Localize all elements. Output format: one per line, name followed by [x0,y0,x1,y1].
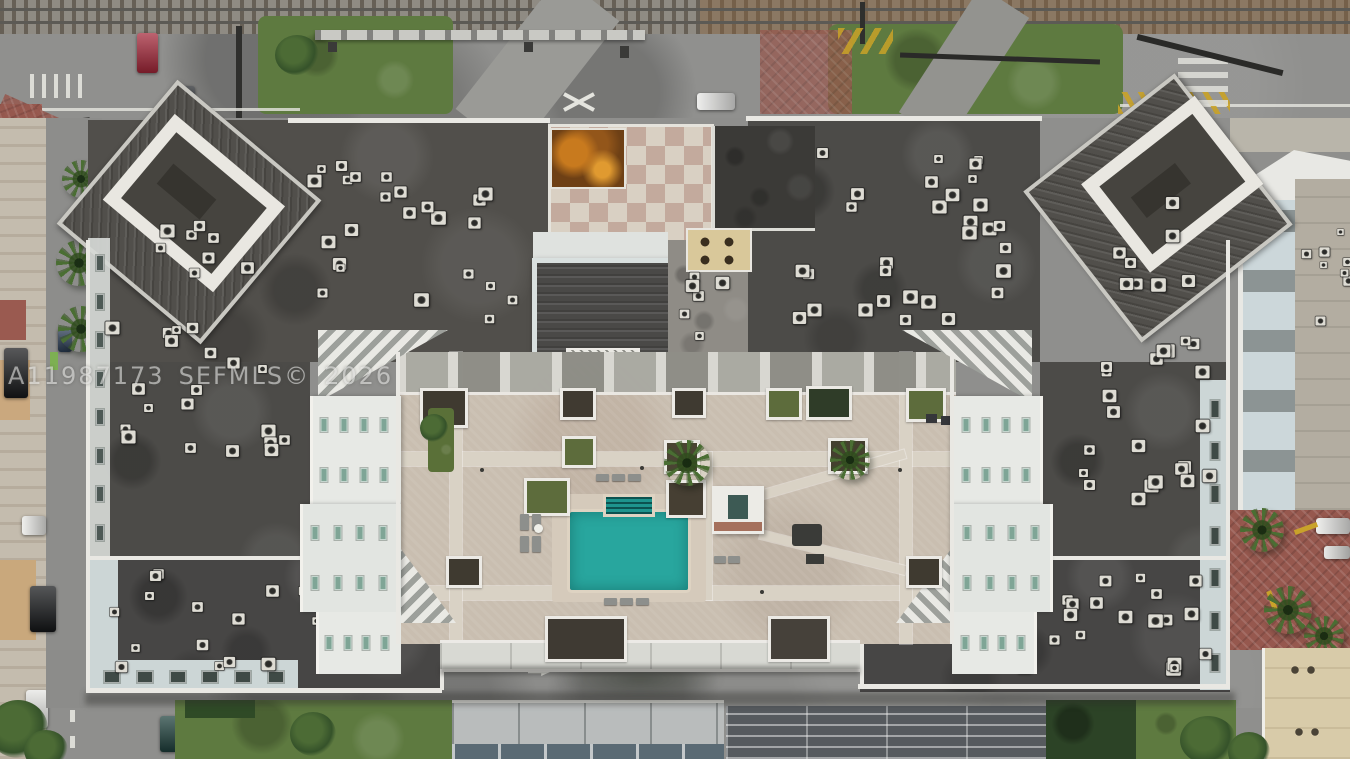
facade-right-3-windows [956,616,1030,670]
ac-unit [1315,316,1325,325]
ac-field-right-wing [1048,320,1218,520]
sidewalk-brick-patch [0,300,26,340]
ac-unit [350,172,361,182]
ac-unit [192,602,203,612]
ac-unit [1079,469,1088,477]
lounger-bottom-a [604,598,617,605]
lounger-col-c [520,536,529,552]
ac-unit [680,309,690,318]
tree-bottom-3 [24,730,68,759]
planter-dark-3 [560,388,596,420]
window [1211,527,1220,545]
window [363,636,370,650]
window [962,636,969,650]
solar-panel-roof [726,706,1046,759]
ac-unit [261,425,275,438]
ac-unit [962,226,976,239]
ac-field-center [672,262,742,342]
ac-unit [1181,336,1191,345]
ac-unit [403,207,416,218]
window [986,576,993,590]
lounger-row1-a [596,474,609,481]
south-wing-shadow [440,666,860,675]
window [1031,576,1038,590]
ac-unit [421,202,433,213]
ac-unit [904,290,919,303]
patio-chairs-dark [926,414,937,423]
ac-unit [817,148,828,158]
ac-unit [969,159,981,170]
ac-unit [261,658,275,670]
parapet-east-edge [1226,240,1230,688]
watermark-year: 2026 [324,362,393,390]
facade-right-1-windows [956,400,1036,500]
window [96,255,104,271]
window [334,526,341,540]
window [379,526,386,540]
small-tree-courtyard [420,414,448,442]
ac-unit [1185,608,1199,621]
window [1031,526,1038,540]
black-car-left [30,586,56,632]
beige-roof-ac-pair-2 [1291,724,1321,740]
lounger-col-a [520,514,529,530]
window [986,526,993,540]
rust-roof-section [550,128,626,189]
ac-unit [226,445,239,457]
ac-unit [1107,406,1120,418]
ac-unit [946,189,960,201]
ac-unit [877,295,890,307]
ac-unit [1343,258,1350,266]
trash-can-3 [760,590,764,594]
gate-equipment-2 [524,42,533,52]
window [379,576,386,590]
south-wing-planter-1 [545,616,627,662]
trash-can-2 [640,466,644,470]
planter-dark-6 [906,556,942,588]
planter-green-1 [524,478,570,516]
signal-mast [236,26,242,118]
ac-unit [996,264,1011,278]
ac-unit [317,165,325,173]
ac-unit [150,571,161,581]
ac-unit [1113,247,1125,258]
beige-building [1262,648,1350,759]
facade-left-1-windows [314,400,394,500]
ac-unit [1203,470,1216,482]
ac-unit [215,662,224,670]
ac-unit [807,304,821,317]
lounger-bottom-b [620,598,633,605]
parapet-bottom-right [858,684,1230,689]
white-car-top [697,93,735,110]
courtyard-pavilion [712,486,764,534]
window [1023,418,1030,432]
ac-unit [190,269,200,278]
ac-unit [1182,275,1195,287]
adjacent-roof-ac-field [1298,193,1348,481]
ac-unit [264,444,278,456]
house-front-strip [452,744,724,759]
facade-right-2-windows [956,508,1046,608]
ac-field-top-left [300,150,530,340]
ac-unit [1337,229,1344,235]
ac-unit [322,236,336,249]
ac-unit [1064,609,1077,621]
window [964,576,971,590]
lounger-row1-b [612,474,625,481]
gate-equipment-1 [328,42,337,52]
ac-unit [880,266,891,276]
ac-unit [478,187,492,200]
planter-dark-4 [672,388,706,418]
ac-unit [686,280,699,292]
aerial-photo: A11987173SEFMLS©2026 [0,0,1350,759]
ac-unit [186,231,196,241]
ac-unit [1175,463,1188,475]
window [381,468,388,482]
window [963,468,970,482]
window [341,468,348,482]
window [381,418,388,432]
ac-unit [105,322,119,335]
hedge-dark-bottom-right [1046,700,1136,759]
ac-unit [131,644,139,652]
facade-left-3-windows [320,616,394,670]
window [1017,636,1024,650]
ac-unit [1125,258,1136,268]
ac-unit [1166,197,1179,209]
ac-unit [1156,344,1170,356]
ac-unit [165,335,178,347]
ac-field-left-wing [96,310,296,470]
ac-unit [1103,390,1117,403]
window [334,576,341,590]
ac-unit [1084,480,1095,490]
ac-unit [232,613,244,624]
window [326,636,333,650]
ac-unit [203,252,215,263]
ac-unit [241,262,254,274]
ac-unit [1189,576,1201,587]
lounger-pair-a [714,556,726,563]
ac-unit [1181,474,1195,487]
ac-unit [793,312,806,324]
ac-unit [1119,611,1133,624]
ac-unit [1136,574,1145,582]
ac-unit [1196,366,1210,379]
rail-line-2 [0,21,1350,24]
ac-unit [1049,636,1059,645]
ac-unit [161,225,175,238]
window [983,418,990,432]
lounger-row1-c [628,474,641,481]
ac-unit [110,608,119,617]
ac-unit [223,657,234,667]
ac-unit [1085,445,1096,455]
trash-can-4 [898,468,902,472]
ac-unit [115,662,126,672]
watermark-mls-text: SEFMLS© [179,362,311,390]
ac-unit [968,175,976,183]
ac-unit [1120,278,1133,290]
ac-unit [1148,614,1163,627]
red-car [137,33,158,73]
tree-bottom-1 [290,712,336,756]
lounger-pair-b [728,556,740,563]
ac-unit [994,220,1005,230]
beige-roof-ac-pair-1 [1287,662,1317,678]
ac-unit [795,265,809,278]
ac-unit [1200,649,1212,660]
window [1009,576,1016,590]
planter-green-3 [562,436,596,468]
ac-unit [716,277,729,289]
window [999,636,1006,650]
window [96,525,104,541]
ac-unit [925,176,938,188]
parapet-west-edge [86,240,90,692]
ac-field-top-right [770,140,1020,340]
window [983,468,990,482]
south-wing-planter-2 [768,616,830,662]
ac-unit [851,188,864,200]
white-car-left-1 [22,516,46,535]
window [361,468,368,482]
parapet-top-right [746,116,1042,121]
facade-right-edge-line [950,352,954,644]
window [963,418,970,432]
planter-green-2 [766,388,802,420]
ac-unit [431,211,446,224]
tree-on-median [275,35,319,75]
ac-unit [1151,590,1162,600]
ac-unit [208,233,219,243]
palm-lot-1 [1240,508,1284,552]
white-car-lot-1 [1316,518,1350,534]
window [381,636,388,650]
window [96,486,104,502]
ac-unit [1151,278,1166,291]
ac-unit [181,399,193,410]
trash-can-1 [480,468,484,472]
ac-unit [1090,597,1103,609]
rail-line-1 [0,8,1350,11]
ac-field-tower-nw [150,200,260,300]
palm-courtyard-2 [830,440,870,480]
sidewalk-right-top [1230,118,1350,152]
central-tower-upper-deck [533,232,668,260]
planter-dark-5 [446,556,482,588]
ac-unit [414,293,429,306]
ac-unit [336,265,344,273]
window [980,636,987,650]
ac-unit [1000,243,1011,253]
ac-unit [194,221,205,231]
swimming-pool [570,512,688,590]
ac-unit [921,295,936,308]
ac-unit [1341,269,1349,276]
window [1003,418,1010,432]
ac-field-tower-ne [1090,190,1200,290]
planter-hedge [806,386,852,420]
mls-watermark: A11987173SEFMLS©2026 [8,362,407,390]
ac-unit [186,443,197,453]
window [312,526,319,540]
ac-unit [187,323,198,333]
ac-unit [381,172,392,182]
building-shadow [85,692,1235,705]
window [361,418,368,432]
parapet-top-left [288,118,550,123]
watermark-listing-id: A11987173 [8,362,165,390]
facade-left-edge-line [396,352,400,644]
ac-unit [486,282,495,290]
umbrella-white [534,524,543,533]
ac-unit [934,155,943,163]
crossing-gate-arm [315,30,645,40]
window [1023,468,1030,482]
ac-unit [381,192,391,201]
window [321,418,328,432]
ac-unit [144,404,153,412]
window [964,526,971,540]
ac-unit [395,186,407,197]
ac-unit [695,332,704,340]
window [341,418,348,432]
ac-unit [345,224,358,236]
lounger-col-d [532,536,541,552]
white-car-lot-2 [1324,546,1350,559]
facade-left-2-windows [304,508,394,608]
ac-unit [205,347,217,358]
lounger-bottom-c [636,598,649,605]
ac-unit [1076,631,1085,640]
ac-unit [1166,230,1180,242]
ac-unit [1344,276,1350,285]
pavilion-inner-court [728,495,748,519]
ac-unit [197,640,208,650]
ac-unit [1320,248,1330,257]
ac-unit [1320,262,1327,268]
ac-unit [1302,250,1311,259]
ac-unit [1132,492,1146,505]
ac-unit [1196,420,1210,432]
pool-steps [606,497,652,514]
ac-unit [974,199,988,212]
crosswalk-left [30,74,82,98]
ac-unit [1131,440,1144,452]
window [357,576,364,590]
ac-unit [858,304,872,317]
parapet-bottom-left [86,688,442,693]
palm-courtyard-1 [664,440,710,486]
window [357,526,364,540]
ac-unit [1100,576,1112,587]
ac-unit [1170,664,1179,672]
patio-furniture-set [792,524,822,546]
window [312,576,319,590]
window [96,294,104,310]
yellow-curve-arrow [838,28,893,54]
gate-equipment-3 [620,46,629,58]
ac-unit [121,430,135,443]
ac-unit [942,313,955,325]
ac-unit [145,592,154,600]
ac-unit [267,585,280,597]
ac-unit [991,288,1003,299]
ac-unit [693,291,704,301]
ac-unit [464,269,474,278]
ac-unit [172,326,181,334]
ac-unit [336,161,347,171]
pavilion-brick-base [714,522,762,531]
ac-unit [1101,362,1112,372]
ac-unit [485,315,494,324]
ac-unit [846,202,856,211]
ac-unit [900,315,911,325]
ac-unit [933,201,947,214]
ac-unit [469,217,481,228]
ac-unit [1148,475,1163,488]
ac-unit [279,436,290,446]
ac-unit [508,295,518,304]
window [344,636,351,650]
ac-unit [155,243,165,252]
window [1009,526,1016,540]
sidewalk-left [0,118,46,759]
ac-unit [317,289,327,298]
ac-unit [308,175,322,188]
window [1003,468,1010,482]
window [321,468,328,482]
